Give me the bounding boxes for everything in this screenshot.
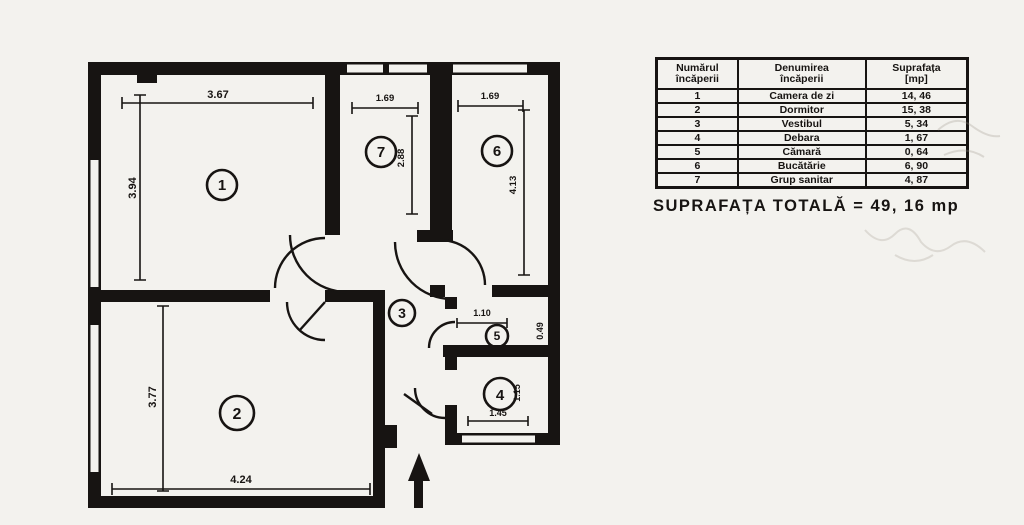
- dim-room7-height: 2.88: [396, 149, 407, 168]
- entry-door-leaf: [404, 394, 432, 414]
- table-row: 5 Cămară 0, 64: [657, 145, 968, 159]
- cell-room-name: Vestibul: [738, 117, 866, 131]
- dim-room6-height: 4.13: [508, 176, 519, 195]
- door-arc-room1: [275, 238, 325, 288]
- header-room-name: Denumirea încăperii: [738, 59, 866, 90]
- cell-room-area: 6, 90: [866, 159, 968, 173]
- table-row: 4 Debara 1, 67: [657, 131, 968, 145]
- areas-table: Numărul încăperii Denumirea încăperii Su…: [655, 57, 969, 189]
- windows: [91, 62, 536, 472]
- room-circle-7: 7: [366, 137, 396, 167]
- dim-room5-width: 1.10: [473, 308, 491, 318]
- table-row: 1 Camera de zi 14, 46: [657, 89, 968, 103]
- room-circle-6: 6: [482, 136, 512, 166]
- scanned-floor-plan-page: 3.67 3.94 1.69 2.88 1.69 4.13 4.24 3.77 …: [0, 0, 1024, 525]
- room-number-circles: 1 2 3 4 5 6 7: [207, 136, 516, 430]
- cell-room-nr: 3: [657, 117, 738, 131]
- room-circle-5: 5: [486, 325, 508, 347]
- table-row: 3 Vestibul 5, 34: [657, 117, 968, 131]
- dim-room7-width: 1.69: [376, 93, 395, 104]
- cell-room-area: 1, 67: [866, 131, 968, 145]
- entrance-arrow-icon: [408, 453, 430, 508]
- cell-room-nr: 4: [657, 131, 738, 145]
- cell-room-name: Cămară: [738, 145, 866, 159]
- dim-room6-width: 1.69: [481, 91, 500, 102]
- cell-room-name: Debara: [738, 131, 866, 145]
- cell-room-name: Camera de zi: [738, 89, 866, 103]
- cell-room-nr: 7: [657, 173, 738, 188]
- door-arc-room7: [290, 235, 347, 292]
- door-arc-room5: [429, 322, 455, 348]
- door-arc-kitchen: [440, 240, 485, 285]
- floor-plan-svg: 3.67 3.94 1.69 2.88 1.69 4.13 4.24 3.77 …: [0, 0, 640, 525]
- room-circle-3: 3: [389, 300, 415, 326]
- header-room-number: Numărul încăperii: [657, 59, 738, 90]
- door-leaf-room2: [299, 302, 325, 331]
- total-area-line: SUPRAFAȚA TOTALĂ = 49, 16 mp: [653, 194, 1013, 216]
- dim-room1-width: 3.67: [207, 89, 228, 101]
- cell-room-area: 15, 38: [866, 103, 968, 117]
- cell-room-name: Bucătărie: [738, 159, 866, 173]
- cell-room-area: 4, 87: [866, 173, 968, 188]
- header-area-line2: [mp]: [869, 74, 964, 85]
- scan-smudge: [855, 210, 1005, 280]
- cell-room-nr: 2: [657, 103, 738, 117]
- cell-room-nr: 5: [657, 145, 738, 159]
- dim-room1-height: 3.94: [127, 176, 139, 198]
- table-row: 7 Grup sanitar 4, 87: [657, 173, 968, 188]
- cell-room-area: 0, 64: [866, 145, 968, 159]
- room-number-5: 5: [494, 329, 501, 343]
- header-room-number-line2: încăperii: [660, 74, 735, 85]
- room-number-6: 6: [493, 143, 501, 160]
- cell-room-name: Grup sanitar: [738, 173, 866, 188]
- room-number-1: 1: [218, 177, 226, 194]
- table-row: 2 Dormitor 15, 38: [657, 103, 968, 117]
- cell-room-nr: 1: [657, 89, 738, 103]
- dim-room2-width: 4.24: [230, 474, 252, 486]
- header-room-name-line2: încăperii: [741, 74, 863, 85]
- room-number-4: 4: [496, 387, 505, 404]
- header-area: Suprafața [mp]: [866, 59, 968, 90]
- room-circle-1: 1: [207, 170, 237, 200]
- cell-room-name: Dormitor: [738, 103, 866, 117]
- cell-room-area: 14, 46: [866, 89, 968, 103]
- dim-room5-height: 0.49: [535, 322, 545, 340]
- areas-table-header-row: Numărul încăperii Denumirea încăperii Su…: [657, 59, 968, 90]
- room-number-2: 2: [233, 406, 242, 423]
- room-circle-2: 2: [220, 396, 254, 430]
- room-number-3: 3: [398, 305, 406, 321]
- cell-room-nr: 6: [657, 159, 738, 173]
- dim-room2-height: 3.77: [147, 386, 159, 407]
- table-row: 6 Bucătărie 6, 90: [657, 159, 968, 173]
- room-number-7: 7: [377, 144, 385, 161]
- cell-room-area: 5, 34: [866, 117, 968, 131]
